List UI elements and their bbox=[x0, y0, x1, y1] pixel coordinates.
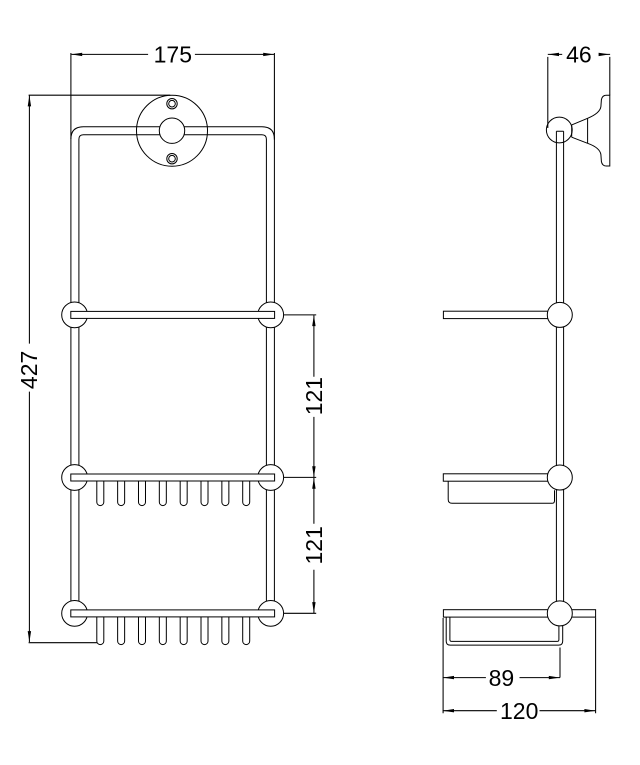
svg-text:175: 175 bbox=[154, 42, 192, 68]
svg-text:121: 121 bbox=[301, 377, 327, 415]
svg-text:121: 121 bbox=[301, 526, 327, 564]
svg-text:120: 120 bbox=[500, 698, 538, 724]
svg-text:89: 89 bbox=[489, 665, 515, 691]
svg-text:427: 427 bbox=[16, 351, 42, 389]
svg-text:46: 46 bbox=[566, 42, 592, 68]
